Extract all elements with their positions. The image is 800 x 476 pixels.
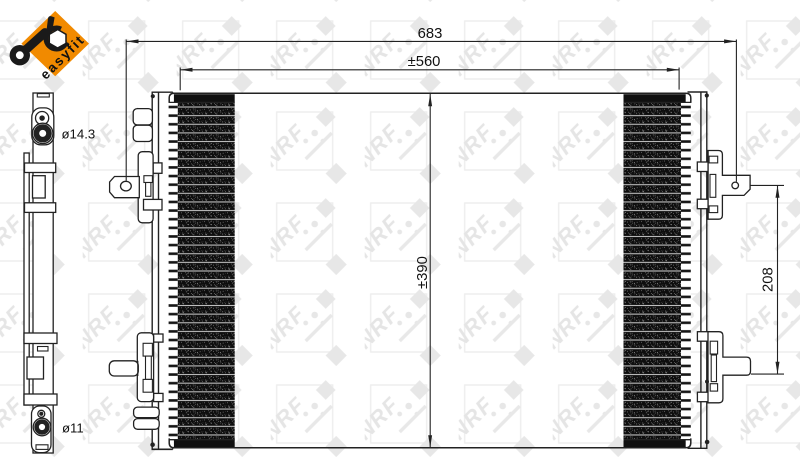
svg-text:208: 208 (761, 267, 777, 292)
svg-text:±390: ±390 (415, 256, 431, 289)
svg-text:683: 683 (418, 26, 443, 42)
svg-text:±560: ±560 (408, 54, 441, 70)
svg-text:ø11: ø11 (62, 421, 84, 436)
svg-text:ø14.3: ø14.3 (62, 127, 96, 142)
